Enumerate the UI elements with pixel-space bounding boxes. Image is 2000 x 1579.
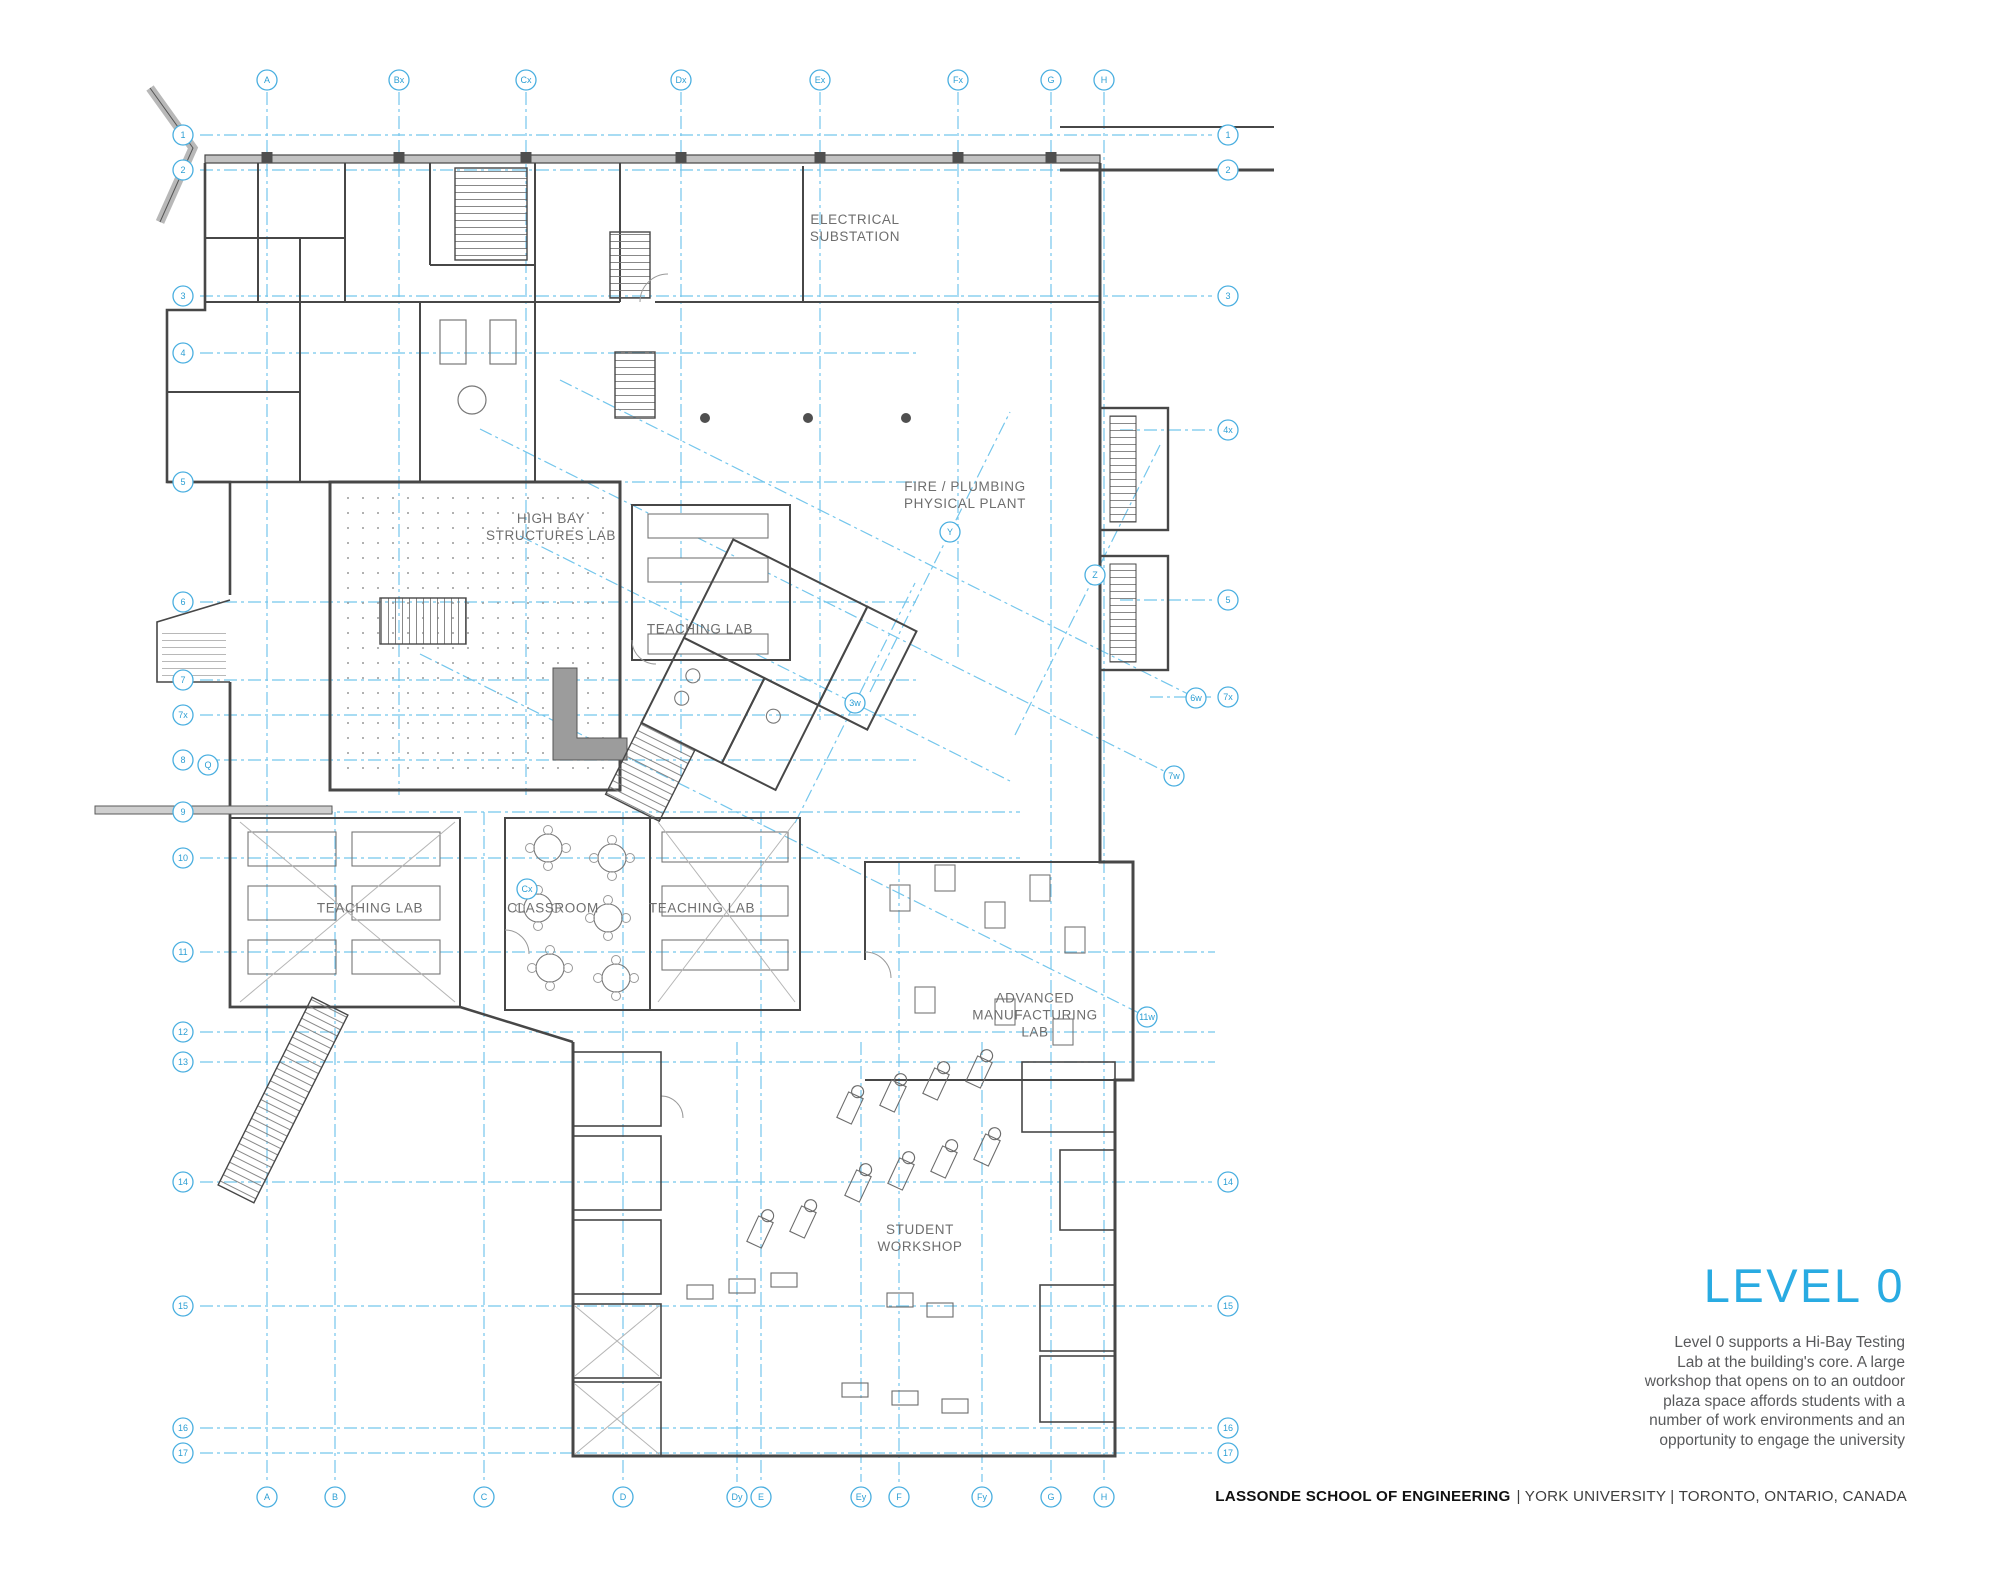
grid-bubble: G	[1041, 70, 1061, 90]
svg-text:9: 9	[180, 807, 185, 817]
svg-text:Dy: Dy	[732, 1492, 743, 1502]
svg-text:Y: Y	[947, 527, 953, 537]
svg-text:4: 4	[180, 348, 185, 358]
svg-text:16: 16	[178, 1423, 188, 1433]
svg-text:7: 7	[180, 675, 185, 685]
building-walls	[95, 88, 1274, 1456]
svg-text:5: 5	[1225, 595, 1230, 605]
grid-bubble: 3w	[845, 693, 865, 713]
svg-text:Cx: Cx	[521, 75, 532, 85]
svg-text:Dx: Dx	[676, 75, 687, 85]
furniture	[262, 152, 1086, 1456]
svg-text:2: 2	[1225, 165, 1230, 175]
svg-text:4x: 4x	[1223, 425, 1233, 435]
svg-text:A: A	[264, 75, 270, 85]
svg-text:Fx: Fx	[953, 75, 963, 85]
grid-bubble: Fy	[972, 1487, 992, 1507]
page-canvas: AABxCxDxExFxGGHHBCDDyEEyFFy11223345677x8…	[0, 0, 2000, 1579]
svg-text:Ex: Ex	[815, 75, 826, 85]
grid-bubble: Fx	[948, 70, 968, 90]
grid-bubble: Ey	[851, 1487, 871, 1507]
grid-bubble: Y	[940, 522, 960, 542]
grid-bubble: 8	[173, 750, 193, 770]
grid-bubble: 7w	[1164, 766, 1184, 786]
level-title: LEVEL 0	[1345, 1258, 1905, 1313]
grid-bubble: E	[751, 1487, 771, 1507]
svg-text:1: 1	[180, 130, 185, 140]
svg-text:15: 15	[178, 1301, 188, 1311]
grid-bubble: H	[1094, 1487, 1114, 1507]
grid-bubble: 15	[173, 1296, 193, 1316]
svg-text:6w: 6w	[1190, 693, 1202, 703]
title-block: LEVEL 0 Level 0 supports a Hi-Bay Testin…	[1345, 1258, 1905, 1450]
svg-text:A: A	[264, 1492, 270, 1502]
level-description: Level 0 supports a Hi-Bay Testing Lab at…	[1345, 1333, 1905, 1450]
grid-bubble: C	[474, 1487, 494, 1507]
grid-bubble: 6w	[1186, 688, 1206, 708]
svg-text:12: 12	[178, 1027, 188, 1037]
grid-bubble: Bx	[389, 70, 409, 90]
grid-bubble: B	[325, 1487, 345, 1507]
svg-text:C: C	[481, 1492, 488, 1502]
svg-text:G: G	[1047, 1492, 1054, 1502]
svg-text:3: 3	[180, 291, 185, 301]
grid-bubble: 7	[173, 670, 193, 690]
grid-bubble: 15	[1218, 1296, 1238, 1316]
svg-text:11: 11	[178, 947, 187, 957]
grid-bubble: Dx	[671, 70, 691, 90]
grid-bubble: Z	[1085, 565, 1105, 585]
grid-bubble: 10	[173, 848, 193, 868]
svg-text:Bx: Bx	[394, 75, 405, 85]
grid-bubble: Cx	[516, 70, 536, 90]
grid-bubble: H	[1094, 70, 1114, 90]
footer: LASSONDE SCHOOL OF ENGINEERING| YORK UNI…	[1215, 1488, 1907, 1505]
svg-text:Ey: Ey	[856, 1492, 867, 1502]
svg-text:E: E	[758, 1492, 764, 1502]
grid-bubble: 11	[173, 942, 193, 962]
grid-bubble: 7x	[1218, 687, 1238, 707]
grid-bubble: 2	[173, 160, 193, 180]
grid-bubble: 5	[173, 472, 193, 492]
grid-bubble: 4	[173, 343, 193, 363]
footer-school-name: LASSONDE SCHOOL OF ENGINEERING	[1215, 1488, 1510, 1505]
svg-text:14: 14	[1223, 1177, 1233, 1187]
grid-bubble: 5	[1218, 590, 1238, 610]
svg-text:7x: 7x	[178, 710, 188, 720]
grid-bubble: A	[257, 70, 277, 90]
svg-text:2: 2	[180, 165, 185, 175]
grid-bubble: Cx	[517, 879, 537, 899]
svg-text:D: D	[620, 1492, 627, 1502]
grid-bubble: Q	[198, 755, 218, 775]
grid-bubble: 16	[1218, 1418, 1238, 1438]
grid-bubble: 1	[1218, 125, 1238, 145]
grid-bubble: 14	[173, 1172, 193, 1192]
svg-text:14: 14	[178, 1177, 188, 1187]
svg-text:1: 1	[1225, 130, 1230, 140]
grid-bubble: 4x	[1218, 420, 1238, 440]
grid-lines	[200, 92, 1215, 1482]
svg-text:F: F	[896, 1492, 902, 1502]
grid-bubble: 3	[173, 286, 193, 306]
svg-text:15: 15	[1223, 1301, 1233, 1311]
grid-bubble: 17	[1218, 1443, 1238, 1463]
grid-bubble: 11w	[1137, 1007, 1157, 1027]
svg-text:17: 17	[178, 1448, 188, 1458]
svg-text:6: 6	[180, 597, 185, 607]
svg-text:Q: Q	[204, 760, 211, 770]
svg-text:7x: 7x	[1223, 692, 1233, 702]
svg-text:7w: 7w	[1168, 771, 1180, 781]
grid-bubble: 7x	[173, 705, 193, 725]
svg-text:13: 13	[178, 1057, 188, 1067]
svg-text:Cx: Cx	[522, 884, 533, 894]
svg-text:Fy: Fy	[977, 1492, 987, 1502]
grid-bubble: A	[257, 1487, 277, 1507]
svg-text:16: 16	[1223, 1423, 1233, 1433]
grid-bubble: G	[1041, 1487, 1061, 1507]
footer-location: | YORK UNIVERSITY | TORONTO, ONTARIO, CA…	[1516, 1488, 1907, 1505]
grid-bubble: 1	[173, 125, 193, 145]
grid-bubble: 9	[173, 802, 193, 822]
grid-bubble: 17	[173, 1443, 193, 1463]
grid-bubble: Dy	[727, 1487, 747, 1507]
svg-text:B: B	[332, 1492, 338, 1502]
svg-text:17: 17	[1223, 1448, 1233, 1458]
grid-bubble: 2	[1218, 160, 1238, 180]
grid-bubble: 6	[173, 592, 193, 612]
grid-bubble: 12	[173, 1022, 193, 1042]
grid-bubble: F	[889, 1487, 909, 1507]
grid-bubble: 14	[1218, 1172, 1238, 1192]
svg-text:H: H	[1101, 75, 1108, 85]
grid-bubble: D	[613, 1487, 633, 1507]
svg-text:3w: 3w	[849, 698, 861, 708]
svg-text:11w: 11w	[1139, 1012, 1155, 1022]
grid-bubble: 16	[173, 1418, 193, 1438]
svg-text:5: 5	[180, 477, 185, 487]
grid-bubble: Ex	[810, 70, 830, 90]
grid-bubble: 13	[173, 1052, 193, 1072]
svg-text:3: 3	[1225, 291, 1230, 301]
svg-text:8: 8	[180, 755, 185, 765]
grid-bubble: 3	[1218, 286, 1238, 306]
svg-text:10: 10	[178, 853, 188, 863]
svg-text:Z: Z	[1092, 570, 1098, 580]
svg-text:H: H	[1101, 1492, 1108, 1502]
svg-text:G: G	[1047, 75, 1054, 85]
